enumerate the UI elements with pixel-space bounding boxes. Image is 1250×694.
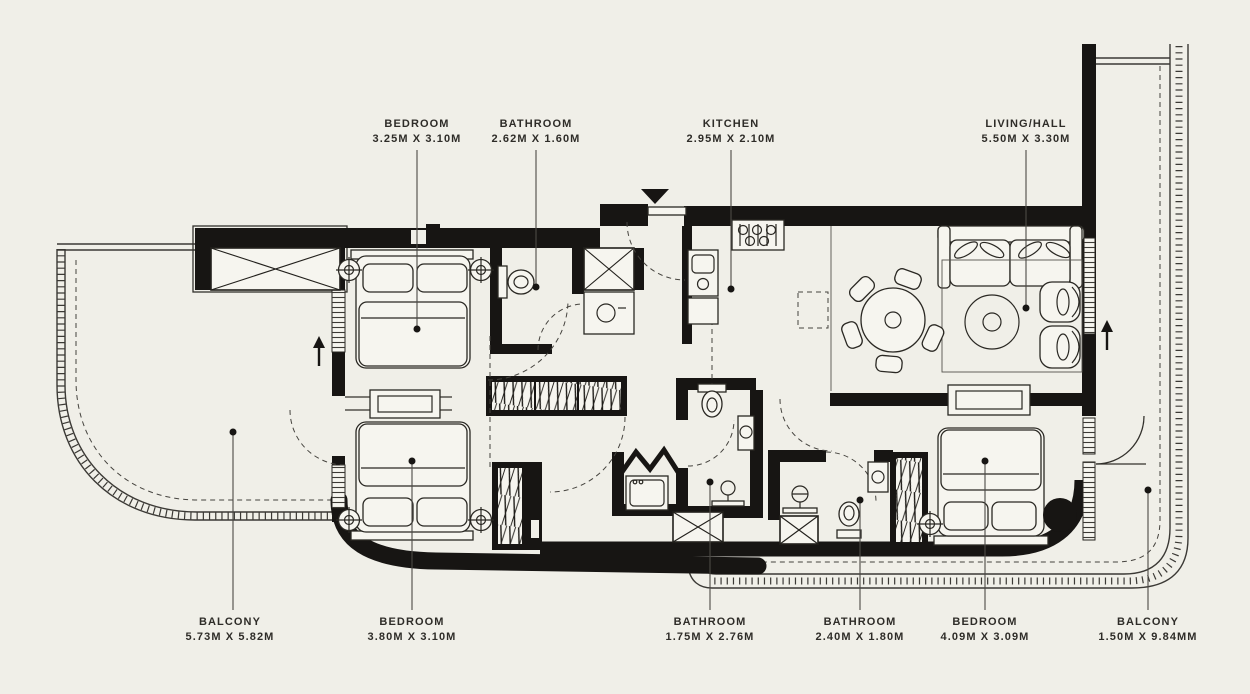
entry-arrow-icon bbox=[641, 189, 669, 204]
window-bedroom3-lower bbox=[1083, 462, 1095, 540]
room-name: KITCHEN bbox=[703, 118, 760, 130]
floor-plan-canvas: BEDROOM 3.25M X 3.10M BATHROOM 2.62M X 1… bbox=[0, 0, 1250, 694]
shaft-bottom-right bbox=[780, 516, 818, 544]
window-living bbox=[1084, 238, 1095, 334]
bed-icon-bedroom1 bbox=[336, 250, 494, 368]
room-dimensions: 1.75M X 2.76M bbox=[666, 631, 755, 643]
armchair-icon bbox=[1040, 326, 1080, 368]
room-label-bathroom-top: BATHROOM 2.62M X 1.60M bbox=[492, 118, 581, 145]
window-bedroom3-upper bbox=[1083, 418, 1095, 454]
room-label-balcony-left: BALCONY 5.73M X 5.82M bbox=[186, 616, 275, 643]
washer-icon bbox=[626, 476, 668, 510]
shower-mixer-icon bbox=[712, 481, 744, 506]
north-arrow-icon bbox=[313, 336, 325, 366]
shaft-bathroom-top bbox=[584, 248, 634, 290]
room-dimensions: 4.09M X 3.09M bbox=[941, 631, 1030, 643]
basin-icon bbox=[738, 416, 754, 450]
room-name: BATHROOM bbox=[674, 616, 747, 628]
shaft-bottom-left bbox=[673, 512, 723, 542]
room-name: LIVING/HALL bbox=[985, 118, 1066, 130]
toilet-icon bbox=[837, 502, 861, 538]
room-label-living-hall: LIVING/HALL 5.50M X 3.30M bbox=[982, 118, 1071, 145]
room-dimensions: 3.80M X 3.10M bbox=[368, 631, 457, 643]
wardrobe-bedroom2 bbox=[492, 462, 528, 550]
room-dimensions: 5.73M X 5.82M bbox=[186, 631, 275, 643]
room-dimensions: 1.50M X 9.84MM bbox=[1098, 631, 1197, 643]
room-name: BALCONY bbox=[199, 616, 261, 628]
kitchen-sink-icon bbox=[688, 250, 718, 324]
north-arrow-icon bbox=[1101, 320, 1113, 350]
room-label-balcony-right: BALCONY 1.50M X 9.84MM bbox=[1098, 616, 1197, 643]
shower-head-icon bbox=[783, 486, 817, 513]
dining-table-icon bbox=[840, 267, 946, 373]
stove-icon bbox=[732, 220, 784, 250]
toilet-icon bbox=[498, 266, 534, 298]
shaft-top-left bbox=[211, 248, 340, 290]
lamp-icon bbox=[468, 507, 494, 533]
wardrobe-corridor bbox=[486, 376, 627, 416]
vanity-sink-icon bbox=[584, 292, 634, 334]
room-label-bedroom-bottom-right: BEDROOM 4.09M X 3.09M bbox=[941, 616, 1030, 643]
room-dimensions: 5.50M X 3.30M bbox=[982, 133, 1071, 145]
room-name: BEDROOM bbox=[952, 616, 1017, 628]
toilet-icon bbox=[698, 384, 726, 417]
room-label-kitchen: KITCHEN 2.95M X 2.10M bbox=[687, 118, 776, 145]
room-name: BATHROOM bbox=[824, 616, 897, 628]
room-dimensions: 2.62M X 1.60M bbox=[492, 133, 581, 145]
window-bedroom2 bbox=[332, 465, 345, 508]
coffee-table-icon bbox=[965, 295, 1019, 349]
bed-icon-bedroom3 bbox=[917, 385, 1048, 545]
room-name: BEDROOM bbox=[384, 118, 449, 130]
room-label-bathroom-bottom-right: BATHROOM 2.40M X 1.80M bbox=[816, 616, 905, 643]
window-bedroom1 bbox=[332, 290, 345, 352]
room-label-bedroom-top: BEDROOM 3.25M X 3.10M bbox=[373, 118, 462, 145]
bed-icon-bedroom2 bbox=[336, 390, 494, 540]
wardrobe-bedroom3 bbox=[890, 452, 928, 548]
room-name: BALCONY bbox=[1117, 616, 1179, 628]
room-dimensions: 3.25M X 3.10M bbox=[373, 133, 462, 145]
room-dimensions: 2.40M X 1.80M bbox=[816, 631, 905, 643]
room-label-bathroom-bottom-left: BATHROOM 1.75M X 2.76M bbox=[666, 616, 755, 643]
basin-icon bbox=[868, 462, 888, 492]
room-dimensions: 2.95M X 2.10M bbox=[687, 133, 776, 145]
room-label-bedroom-bottom-left: BEDROOM 3.80M X 3.10M bbox=[368, 616, 457, 643]
armchair-icon bbox=[1040, 282, 1080, 322]
sofa-icon bbox=[938, 226, 1084, 288]
structural-column bbox=[1043, 498, 1077, 532]
room-name: BATHROOM bbox=[500, 118, 573, 130]
room-name: BEDROOM bbox=[379, 616, 444, 628]
